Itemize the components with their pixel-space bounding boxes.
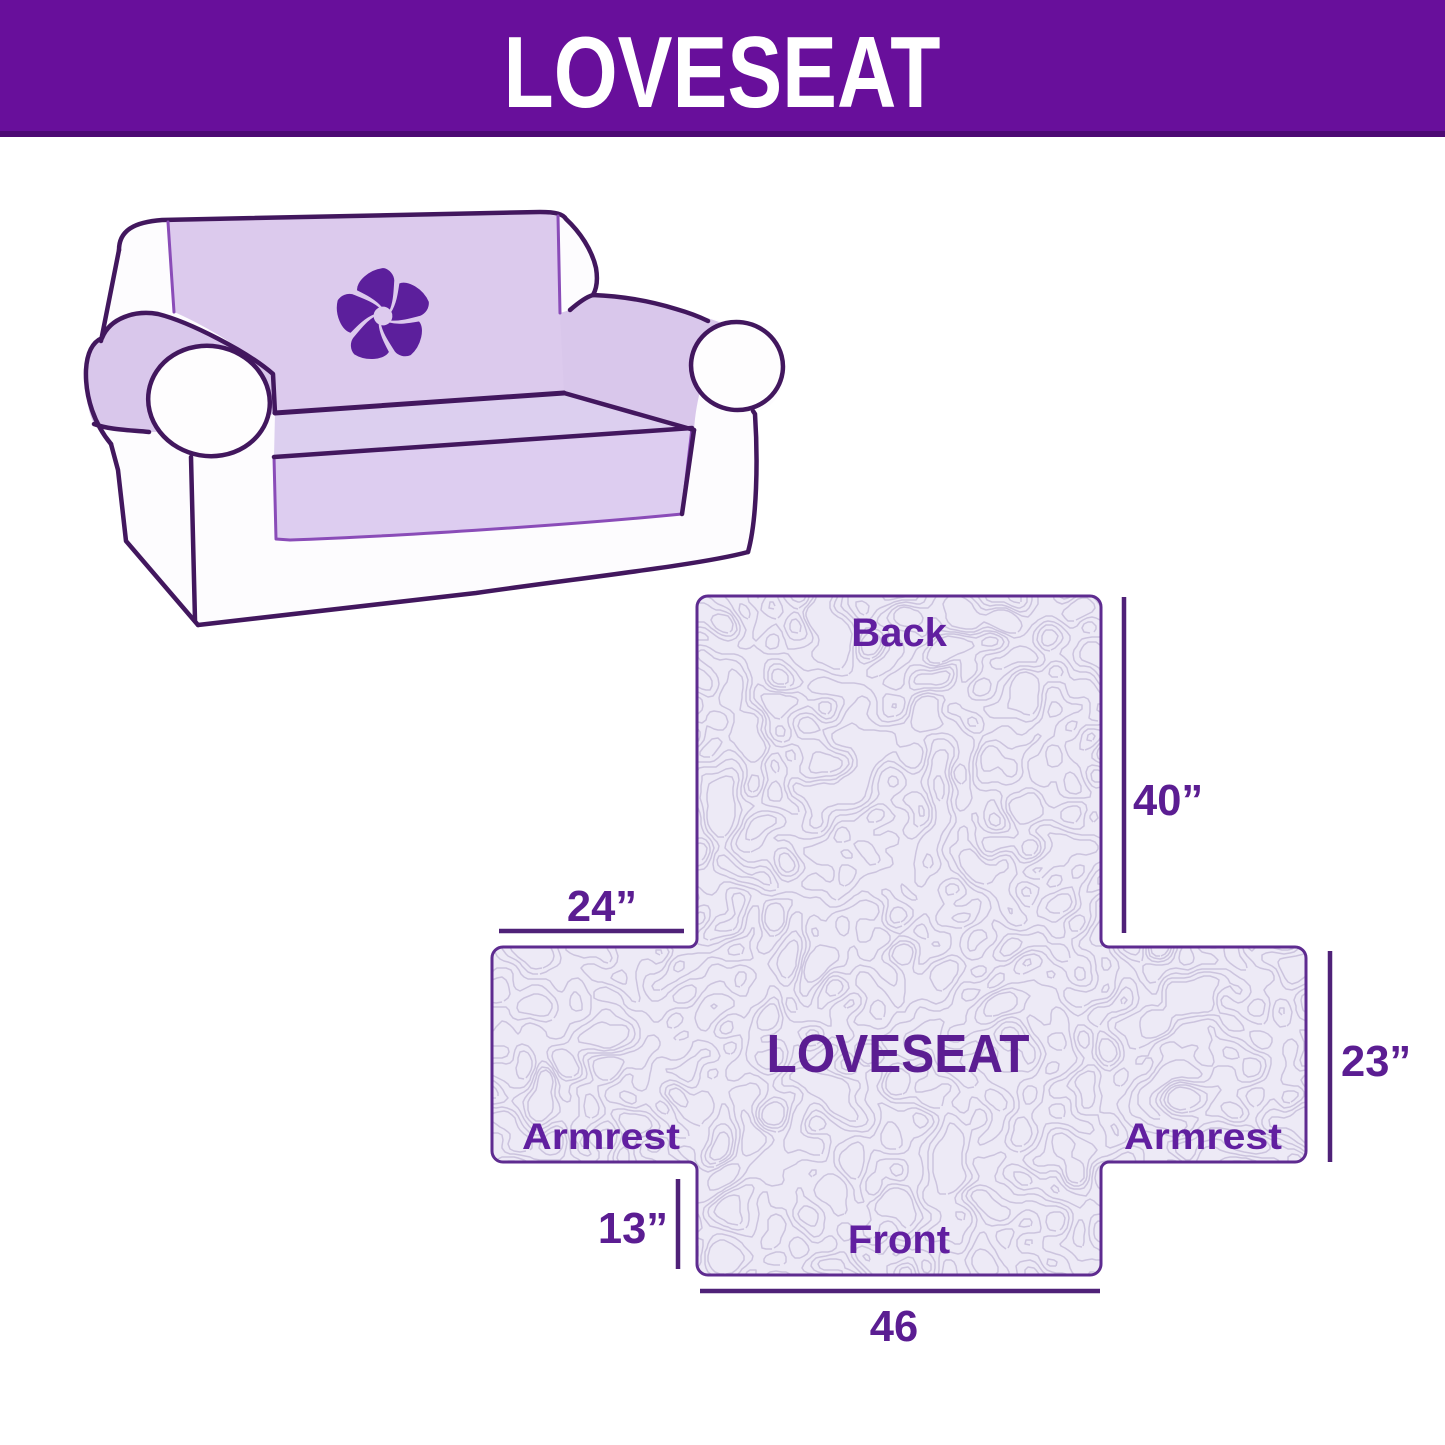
- svg-text:Back: Back: [851, 611, 947, 655]
- svg-text:24”: 24”: [567, 883, 637, 931]
- svg-text:LOVESEAT: LOVESEAT: [767, 1024, 1030, 1084]
- svg-text:13”: 13”: [598, 1205, 668, 1253]
- svg-text:46: 46: [870, 1303, 918, 1351]
- svg-text:40”: 40”: [1133, 777, 1203, 825]
- svg-text:Armrest: Armrest: [522, 1116, 680, 1157]
- svg-text:Armrest: Armrest: [1124, 1116, 1282, 1157]
- svg-text:Front: Front: [848, 1218, 950, 1262]
- svg-text:23”: 23”: [1341, 1038, 1411, 1086]
- svg-text:LOVESEAT: LOVESEAT: [504, 17, 941, 129]
